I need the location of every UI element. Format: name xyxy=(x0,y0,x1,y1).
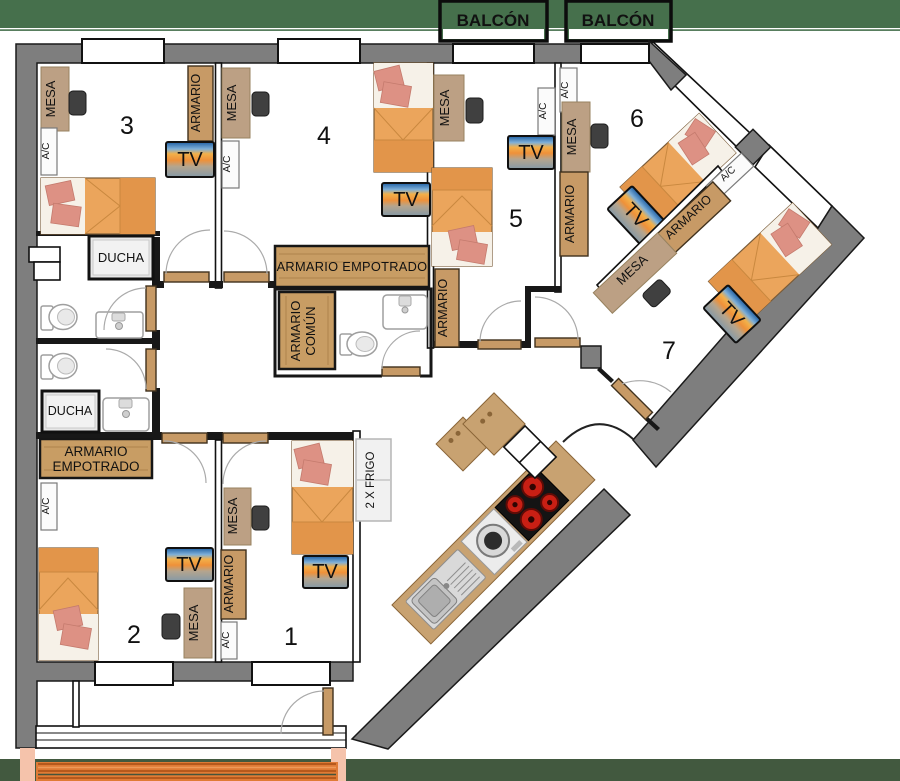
svg-text:EMPOTRADO: EMPOTRADO xyxy=(52,459,139,474)
svg-text:MESA: MESA xyxy=(564,118,579,155)
svg-text:DUCHA: DUCHA xyxy=(48,404,93,418)
svg-text:2: 2 xyxy=(127,621,141,649)
svg-text:MESA: MESA xyxy=(43,80,58,117)
svg-text:A/C: A/C xyxy=(41,143,52,160)
svg-text:MESA: MESA xyxy=(224,84,239,121)
svg-text:A/C: A/C xyxy=(221,632,232,649)
svg-text:A/C: A/C xyxy=(41,498,52,515)
svg-text:TV: TV xyxy=(176,554,202,576)
svg-text:1: 1 xyxy=(284,623,298,651)
svg-text:ARMARIO EMPOTRADO: ARMARIO EMPOTRADO xyxy=(277,259,428,274)
svg-text:BALCÓN: BALCÓN xyxy=(582,11,655,30)
svg-text:ARMARIO: ARMARIO xyxy=(288,301,303,362)
svg-text:DUCHA: DUCHA xyxy=(98,250,145,265)
svg-text:2 X FRIGO: 2 X FRIGO xyxy=(365,452,377,509)
svg-text:A/C: A/C xyxy=(560,82,571,99)
svg-text:ARMARIO: ARMARIO xyxy=(64,444,127,459)
svg-text:BALCÓN: BALCÓN xyxy=(457,11,530,30)
svg-text:TV: TV xyxy=(393,189,419,211)
svg-text:7: 7 xyxy=(662,337,676,365)
svg-text:ARMARIO: ARMARIO xyxy=(189,74,203,133)
svg-text:TV: TV xyxy=(312,561,338,583)
svg-text:ARMARIO: ARMARIO xyxy=(563,185,577,244)
svg-text:ARMARIO: ARMARIO xyxy=(436,279,450,338)
svg-text:MESA: MESA xyxy=(186,604,201,641)
svg-text:COMÚN: COMÚN xyxy=(303,306,318,355)
svg-text:A/C: A/C xyxy=(538,103,549,120)
svg-text:TV: TV xyxy=(518,142,544,164)
svg-text:6: 6 xyxy=(630,105,644,133)
svg-text:TV: TV xyxy=(177,149,203,171)
svg-text:5: 5 xyxy=(509,205,523,233)
svg-text:4: 4 xyxy=(317,122,331,150)
svg-text:MESA: MESA xyxy=(437,89,452,126)
svg-text:A/C: A/C xyxy=(222,156,233,173)
svg-text:MESA: MESA xyxy=(225,497,240,534)
svg-text:ARMARIO: ARMARIO xyxy=(222,555,236,614)
svg-text:3: 3 xyxy=(120,112,134,140)
